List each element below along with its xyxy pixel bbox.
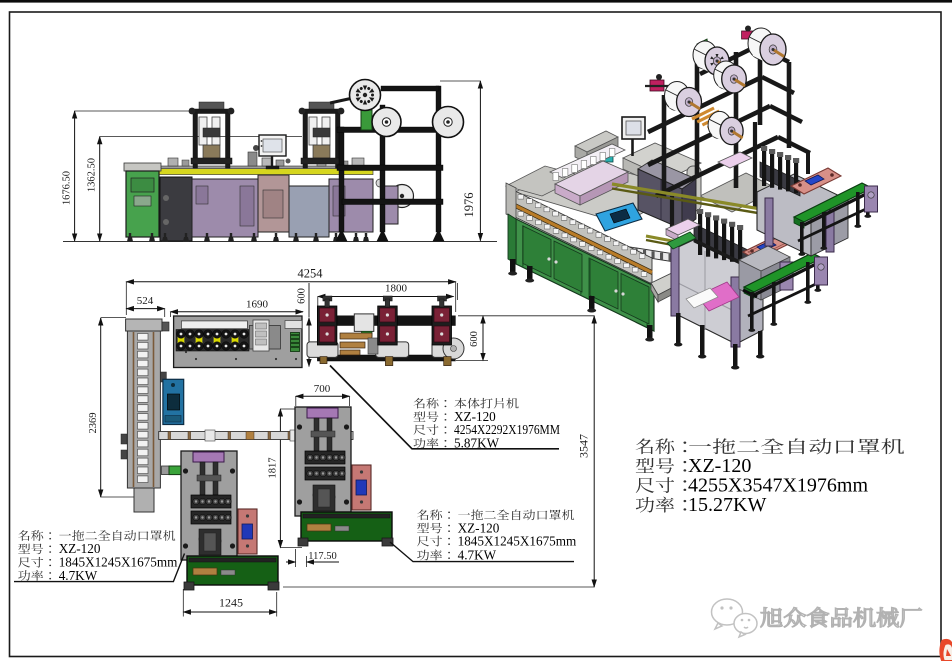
svg-text:600: 600 <box>469 331 480 347</box>
svg-text:1817: 1817 <box>268 458 279 479</box>
svg-text:1362.50: 1362.50 <box>87 158 98 192</box>
svg-text:1690: 1690 <box>246 299 269 311</box>
svg-text:1845X1245X1675mm: 1845X1245X1675mm <box>458 533 577 548</box>
svg-text:600: 600 <box>297 288 308 304</box>
svg-text:15.27KW: 15.27KW <box>688 494 766 516</box>
svg-text:1676.50: 1676.50 <box>62 171 73 205</box>
svg-text:1976: 1976 <box>462 193 476 218</box>
svg-text:524: 524 <box>137 295 154 307</box>
svg-text:1245: 1245 <box>219 596 243 610</box>
svg-text:1800: 1800 <box>385 283 408 295</box>
svg-text:4.7KW: 4.7KW <box>59 568 98 583</box>
svg-text:4254: 4254 <box>298 267 324 281</box>
svg-text:2369: 2369 <box>88 413 99 434</box>
svg-text:117.50: 117.50 <box>308 551 337 562</box>
svg-text:700: 700 <box>314 383 331 395</box>
svg-text:4.7KW: 4.7KW <box>458 547 497 562</box>
svg-text:3547: 3547 <box>577 434 591 458</box>
